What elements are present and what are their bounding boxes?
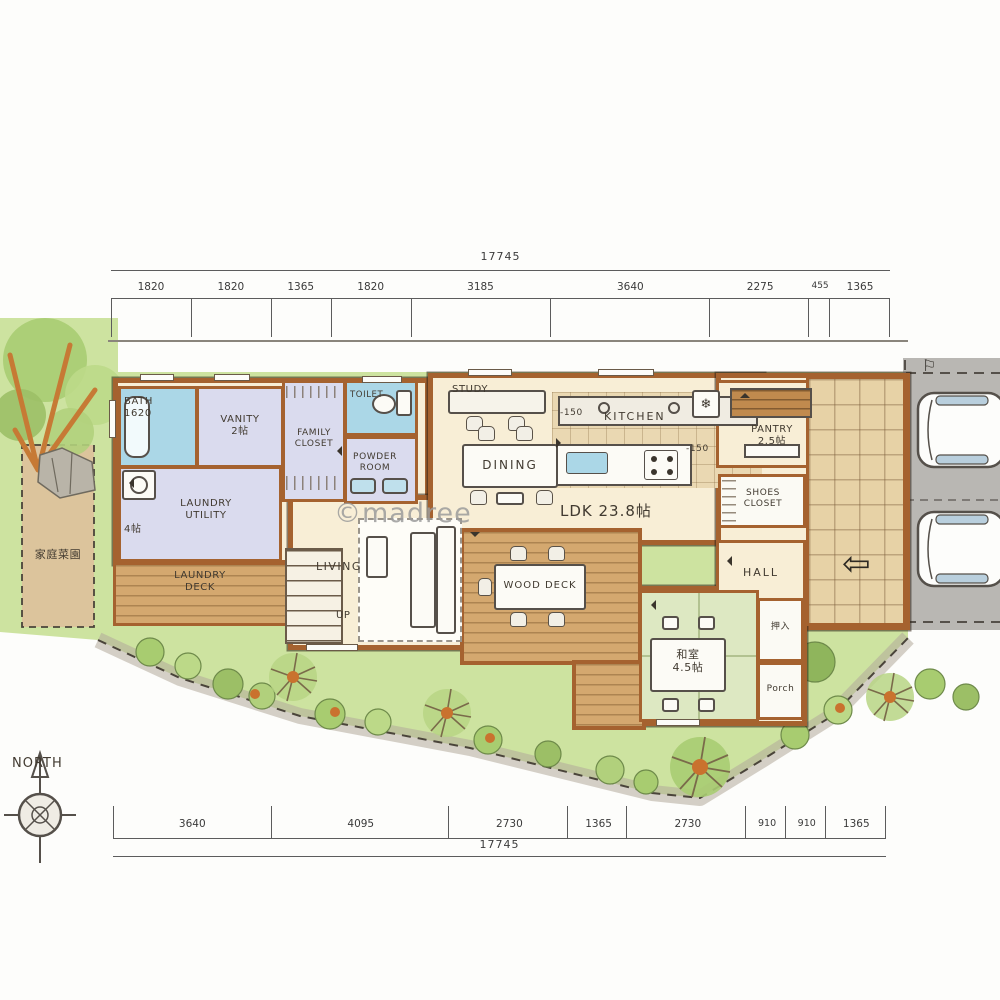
powder-sink-1 bbox=[350, 478, 376, 494]
watermark: ©madree bbox=[334, 498, 472, 529]
deck-chair bbox=[548, 612, 565, 627]
dim-label: 2730 bbox=[450, 818, 569, 834]
window bbox=[362, 376, 402, 383]
label-living: LIVING bbox=[316, 560, 362, 573]
dim-label: 2730 bbox=[628, 818, 747, 834]
gate-flag-icon: ⚐ bbox=[922, 356, 936, 375]
dim-tick bbox=[809, 299, 830, 337]
window bbox=[214, 374, 250, 381]
label-hall: HALL bbox=[726, 566, 796, 579]
zabuton-cushion bbox=[698, 616, 715, 630]
door-marker-icon bbox=[646, 600, 656, 610]
label-laundry-utility: LAUNDRYUTILITY bbox=[150, 498, 262, 522]
car-2 bbox=[918, 512, 1000, 586]
dim-label: 3185 bbox=[411, 281, 551, 297]
dim-label: 1365 bbox=[830, 281, 890, 297]
deck-chair bbox=[510, 546, 527, 561]
entry-approach-tiles bbox=[806, 376, 906, 626]
dim-bottom-labels: 3640 4095 2730 1365 2730 910 910 1365 bbox=[113, 818, 886, 834]
dim-label: 1365 bbox=[271, 281, 331, 297]
fridge-icon: ❄ bbox=[701, 397, 712, 412]
zabuton-cushion bbox=[698, 698, 715, 712]
window bbox=[656, 719, 700, 726]
label-ldk: LDK 23.8帖 bbox=[560, 502, 652, 520]
dining-chair bbox=[536, 490, 553, 505]
dim-top-ticks bbox=[111, 298, 890, 337]
dining-bench bbox=[496, 492, 524, 505]
dim-bottom-total: 17745 bbox=[113, 838, 886, 851]
dim-top-total-line bbox=[111, 270, 890, 271]
toilet-tank bbox=[396, 390, 412, 416]
label-porch: Porch bbox=[759, 684, 802, 695]
wood-deck-extension bbox=[572, 660, 646, 730]
label-level-kitchen: -150 bbox=[560, 408, 583, 419]
zabuton-cushion bbox=[662, 698, 679, 712]
car-1 bbox=[918, 393, 1000, 467]
dim-tick bbox=[830, 299, 890, 337]
label-up: UP bbox=[336, 610, 351, 622]
dining-chair bbox=[470, 490, 487, 505]
dim-label: 3640 bbox=[550, 281, 710, 297]
deck-chair bbox=[510, 612, 527, 627]
label-powder-room: POWDERROOM bbox=[346, 452, 404, 474]
dim-tick bbox=[192, 299, 272, 337]
label-level-entry: -150 bbox=[686, 444, 709, 455]
door-marker-icon bbox=[740, 388, 750, 398]
closet-hangers-icon bbox=[286, 386, 342, 398]
dim-tick bbox=[551, 299, 710, 337]
deck-chair bbox=[478, 578, 492, 596]
dim-label: 2275 bbox=[710, 281, 810, 297]
label-shoes-closet: SHOESCLOSET bbox=[724, 488, 802, 510]
closet-hangers-icon bbox=[286, 476, 342, 490]
dim-label: 1365 bbox=[569, 818, 628, 834]
dim-label: 1820 bbox=[191, 281, 271, 297]
zabuton-cushion bbox=[662, 616, 679, 630]
dim-tick bbox=[272, 299, 332, 337]
dim-tick bbox=[111, 299, 192, 337]
dim-tick bbox=[710, 299, 810, 337]
dim-label: 1820 bbox=[111, 281, 191, 297]
island-sink bbox=[566, 452, 608, 474]
label-pantry: PANTRY2.5帖 bbox=[730, 424, 814, 448]
label-vanity: VANITY2帖 bbox=[198, 414, 282, 438]
label-kitchen-garden: 家庭菜園 bbox=[24, 548, 92, 561]
label-family-closet: FAMILYCLOSET bbox=[284, 428, 344, 450]
dim-label: 1820 bbox=[331, 281, 411, 297]
floor-plan-canvas: ❄ BATH1620 VANITY2帖 FAMILYCLOSET TOILET … bbox=[0, 0, 1000, 1000]
door-marker-icon bbox=[470, 532, 480, 542]
dining-chair bbox=[478, 426, 495, 441]
dining-chair bbox=[516, 426, 533, 441]
dim-label: 455 bbox=[810, 281, 830, 297]
label-bath: BATH1620 bbox=[124, 396, 153, 420]
label-laundry-size: 4帖 bbox=[124, 524, 142, 536]
window bbox=[140, 374, 174, 381]
side-table bbox=[366, 536, 388, 578]
dim-bottom-total-line bbox=[113, 856, 886, 857]
window bbox=[306, 644, 358, 651]
dim-tick bbox=[412, 299, 551, 337]
label-north: NORTH bbox=[12, 756, 63, 772]
window bbox=[598, 369, 654, 376]
label-laundry-deck: LAUNDRYDECK bbox=[140, 570, 260, 594]
window bbox=[468, 369, 512, 376]
dim-top-labels: 1820 1820 1365 1820 3185 3640 2275 455 1… bbox=[111, 281, 890, 297]
label-study: STUDY bbox=[452, 384, 488, 396]
cooktop bbox=[644, 450, 678, 480]
dim-label: 910 bbox=[787, 818, 827, 834]
label-toilet: TOILET bbox=[350, 390, 383, 400]
burner-dots-icon bbox=[651, 456, 657, 462]
dim-label: 3640 bbox=[113, 818, 272, 834]
label-dining: DINING bbox=[462, 458, 558, 472]
dim-tick bbox=[332, 299, 412, 337]
dim-label: 910 bbox=[747, 818, 787, 834]
sofa-back bbox=[436, 526, 456, 634]
deck-chair bbox=[548, 546, 565, 561]
fridge: ❄ bbox=[692, 390, 720, 418]
label-wood-deck: WOOD DECK bbox=[494, 580, 586, 592]
label-kitchen: KITCHEN bbox=[604, 410, 666, 423]
door-marker-icon bbox=[722, 556, 732, 566]
door-marker-icon bbox=[556, 438, 566, 448]
label-washitsu: 和室4.5帖 bbox=[650, 648, 726, 674]
label-oshiire: 押入 bbox=[759, 622, 802, 633]
faucet-icon bbox=[668, 402, 680, 414]
sofa-seat bbox=[410, 532, 436, 628]
window bbox=[109, 400, 116, 438]
entry-arrow-icon: ⇦ bbox=[842, 544, 871, 584]
dim-label: 4095 bbox=[272, 818, 450, 834]
door-marker-icon bbox=[124, 478, 134, 488]
powder-sink-2 bbox=[382, 478, 408, 494]
dim-top-total: 17745 bbox=[111, 250, 890, 263]
dim-label: 1365 bbox=[827, 818, 886, 834]
